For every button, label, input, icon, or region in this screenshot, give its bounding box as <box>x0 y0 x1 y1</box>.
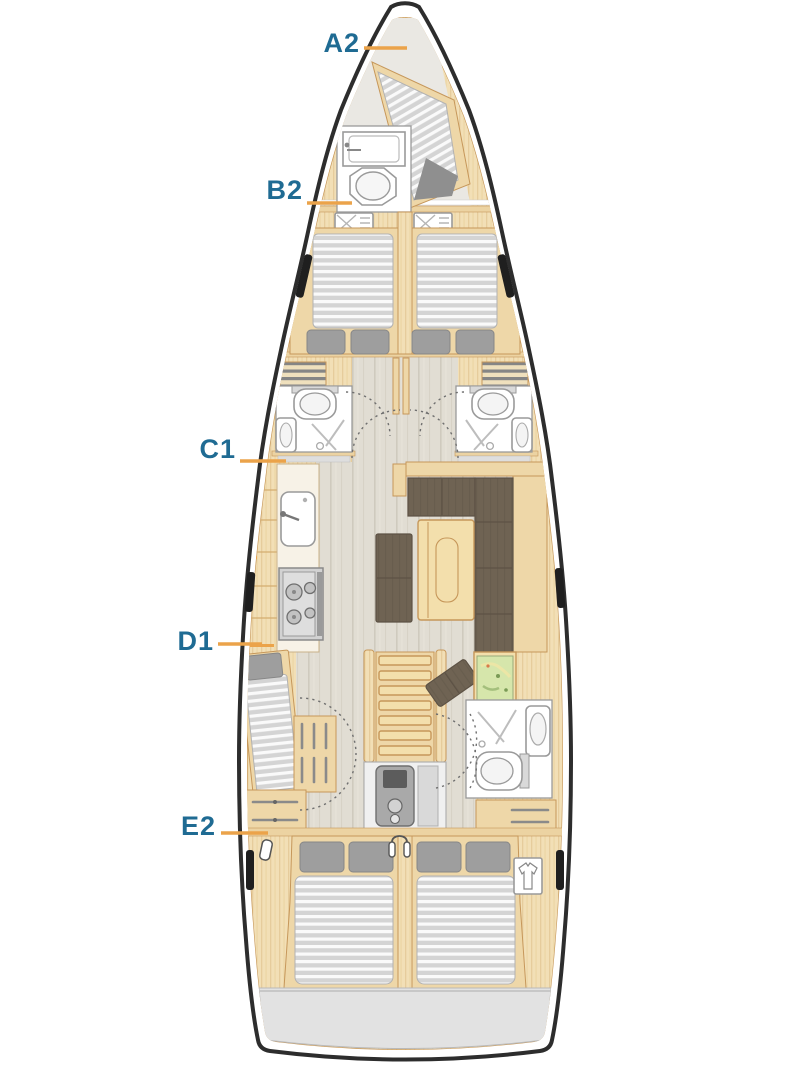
sole-strip-starboard <box>458 456 530 462</box>
salon-bench <box>376 534 412 622</box>
engine-icon <box>376 766 438 826</box>
toilet-icon <box>350 168 396 205</box>
pillow <box>307 330 345 354</box>
sink-icon <box>512 418 532 452</box>
swim-platform <box>259 988 551 1049</box>
aft-cabin-port <box>284 836 398 988</box>
sofa-backrest-side <box>513 476 547 652</box>
toilet-icon <box>470 386 516 419</box>
pillow <box>412 330 450 354</box>
shelf-unit <box>294 716 336 792</box>
toilet-icon <box>292 386 338 419</box>
galley-sink-icon <box>280 492 315 546</box>
salon-cabinet <box>393 464 406 496</box>
pillow <box>466 842 510 872</box>
label-c1: C1 <box>199 434 236 464</box>
engine-compartment <box>364 762 446 830</box>
toilet-icon <box>476 752 529 790</box>
label-b2: B2 <box>266 175 303 205</box>
forward-cabin-divider <box>398 212 412 354</box>
mattress <box>417 876 515 984</box>
sink-icon <box>526 706 550 756</box>
deck-plan-svg: A2 B2 C1 D1 E2 <box>0 0 810 1080</box>
head-starboard <box>456 386 532 452</box>
drawer-unit <box>246 790 306 830</box>
mattress <box>313 234 393 328</box>
chart-map <box>477 656 513 700</box>
sink-icon <box>276 418 296 452</box>
aft-cabin-divider <box>398 836 412 988</box>
label-a2: A2 <box>323 28 360 58</box>
bulkhead-e2 <box>243 828 567 836</box>
portlight-icon <box>246 850 254 890</box>
portlight-icon <box>556 850 564 890</box>
hanging-locker <box>514 858 542 894</box>
head-port <box>276 386 352 452</box>
pillow <box>300 842 344 872</box>
salon-table <box>418 520 474 620</box>
sofa-backrest-top <box>406 462 548 476</box>
pillow <box>351 330 389 354</box>
mattress <box>417 234 497 328</box>
pillow <box>417 842 461 872</box>
label-e2: E2 <box>181 811 216 841</box>
label-d1: D1 <box>177 626 214 656</box>
stove-icon <box>279 568 323 640</box>
vent-locker-starboard <box>482 362 528 388</box>
aft-cabinet-starboard <box>476 800 556 830</box>
chart-table <box>474 652 516 704</box>
companionway-stairs <box>364 650 446 762</box>
mattress <box>295 876 393 984</box>
interior <box>239 17 567 1050</box>
vent-locker-port <box>280 362 326 388</box>
pillow <box>245 653 283 681</box>
pillow <box>349 842 393 872</box>
sink-icon <box>343 132 405 166</box>
aft-cabin-starboard <box>412 836 526 988</box>
pillow <box>456 330 494 354</box>
sole-strip-port <box>278 456 350 462</box>
aft-head <box>466 700 552 798</box>
bow-head <box>337 126 411 212</box>
yacht-deck-plan: A2 B2 C1 D1 E2 <box>0 0 810 1080</box>
